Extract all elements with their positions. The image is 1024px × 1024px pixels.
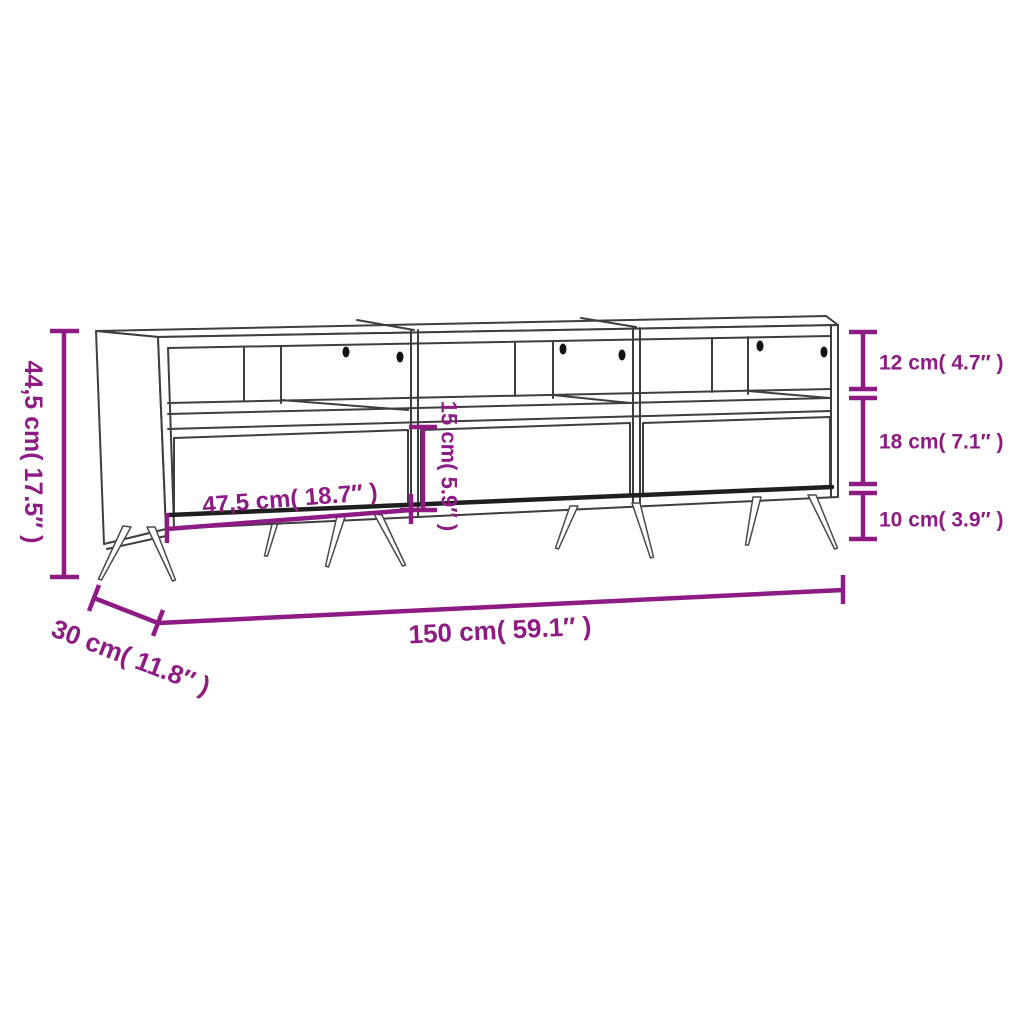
depth-dimension: 30 cm( 11.8″ ): [48, 585, 215, 701]
cabinet-left-panel: [96, 331, 166, 544]
cabinet-leg: [326, 516, 346, 567]
right-dimensions: 12 cm( 4.7″ ) 18 cm( 7.1″ ) 10 cm( 3.9″ …: [849, 332, 1003, 539]
peg-hole-icon: [343, 347, 350, 358]
height-dimension-label: 44,5 cm( 17.5″ ): [19, 361, 47, 544]
cabinet-drawing: [96, 316, 838, 581]
cabinet-leg: [556, 506, 579, 549]
opening-height-label: 15 cm( 5.9″ ): [437, 401, 462, 531]
leg-height-label: 10 cm( 3.9″ ): [879, 509, 1003, 532]
drawer-front: [643, 417, 830, 495]
cabinet-leg: [746, 497, 762, 545]
dimension-diagram: 44,5 cm( 17.5″ ) 12 cm( 4.7″ ) 18 cm( 7.…: [0, 0, 1024, 1024]
height-dimension: 44,5 cm( 17.5″ ): [19, 331, 79, 577]
peg-hole-icon: [560, 344, 567, 355]
cabinet-leg: [808, 495, 838, 549]
compartment-height-label: 12 cm( 4.7″ ): [879, 352, 1003, 375]
cabinet-leg: [147, 527, 176, 581]
width-dimension: 150 cm( 59.1″ ): [158, 575, 843, 649]
width-dimension-label: 150 cm( 59.1″ ): [408, 611, 592, 650]
peg-hole-icon: [757, 341, 764, 352]
depth-dimension-label: 30 cm( 11.8″ ): [48, 613, 215, 701]
drawer-height-dimension: 18 cm( 7.1″ ): [849, 398, 1003, 484]
peg-hole-icon: [397, 352, 404, 363]
compartment-height-dimension: 12 cm( 4.7″ ): [849, 332, 1003, 389]
cabinet-leg: [374, 514, 406, 566]
tv-cabinet-diagram-svg: 44,5 cm( 17.5″ ) 12 cm( 4.7″ ) 18 cm( 7.…: [0, 0, 1024, 1024]
peg-hole-icon: [821, 347, 828, 358]
leg-height-dimension: 10 cm( 3.9″ ): [849, 493, 1003, 539]
peg-hole-icon: [619, 350, 626, 361]
cabinet-leg: [632, 503, 654, 558]
drawer-height-label: 18 cm( 7.1″ ): [879, 431, 1003, 454]
